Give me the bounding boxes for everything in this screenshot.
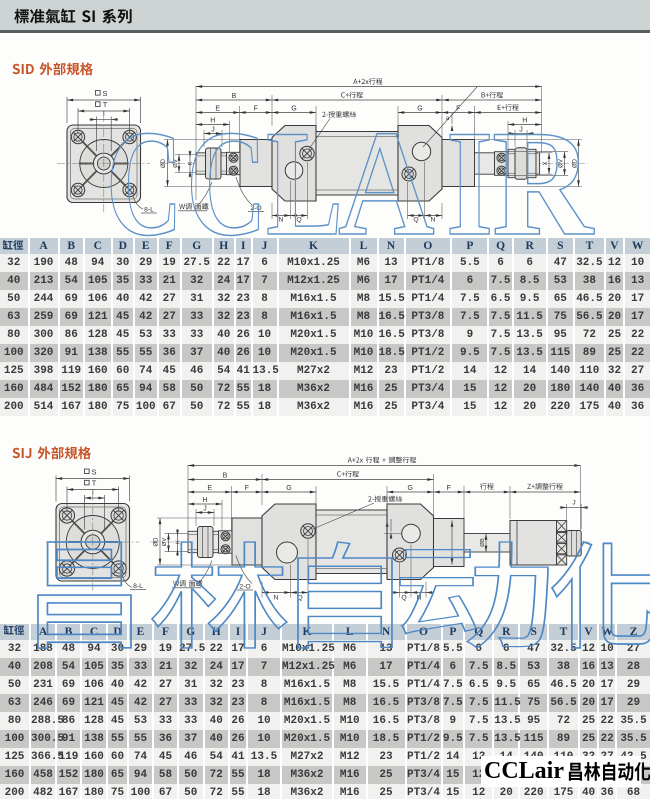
svg-text:8-L: 8-L (144, 207, 154, 214)
svg-text:K: K (176, 540, 182, 544)
svg-text:ØD: ØD (154, 537, 160, 547)
svg-text:Q: Q (401, 595, 406, 602)
svg-text:G: G (291, 105, 296, 112)
svg-text:E: E (207, 485, 212, 492)
svg-text:H: H (210, 117, 215, 124)
svg-text:H: H (202, 497, 207, 504)
svg-text:T: T (103, 100, 108, 109)
svg-text:G: G (286, 485, 291, 492)
svg-text:B: B (232, 93, 237, 100)
svg-text:J: J (572, 500, 575, 507)
svg-text:N: N (431, 217, 436, 224)
svg-text:ØV: ØV (173, 159, 179, 168)
svg-text:Q: Q (297, 595, 302, 602)
svg-text:G: G (408, 485, 413, 492)
svg-text:G: G (417, 105, 422, 112)
svg-text:F: F (254, 105, 258, 112)
svg-text:8-L: 8-L (133, 583, 143, 590)
svg-text:Q: Q (296, 217, 301, 224)
svg-text:K: K (188, 161, 194, 165)
svg-text:S: S (91, 467, 96, 476)
svg-text:ØB: ØB (480, 538, 486, 547)
svg-text:F: F (447, 485, 451, 492)
svg-text:S: S (102, 89, 107, 98)
svg-text:F: F (456, 105, 460, 112)
svg-text:Q: Q (413, 217, 418, 224)
svg-text:a: a (385, 523, 389, 529)
svg-text:F: F (245, 485, 249, 492)
svg-text:J: J (519, 126, 523, 133)
svg-text:N: N (274, 595, 279, 602)
svg-text:ØV: ØV (559, 159, 565, 168)
svg-text:B: B (223, 472, 228, 479)
svg-text:ØV: ØV (162, 538, 168, 547)
svg-text:I: I (103, 111, 105, 118)
svg-text:a: a (446, 116, 450, 122)
svg-text:J: J (203, 505, 207, 512)
svg-text:T: T (92, 479, 97, 488)
svg-text:N: N (417, 595, 422, 602)
svg-text:ØD: ØD (161, 158, 167, 168)
svg-text:N: N (279, 217, 284, 224)
svg-text:H: H (522, 117, 527, 124)
svg-text:X: X (543, 161, 549, 165)
svg-text:2-O: 2-O (239, 584, 250, 591)
svg-text:2-O: 2-O (250, 205, 261, 212)
svg-text:ØD: ØD (573, 158, 579, 168)
svg-text:I: I (92, 490, 94, 497)
svg-text:E: E (215, 105, 220, 112)
svg-text:J: J (211, 126, 215, 133)
